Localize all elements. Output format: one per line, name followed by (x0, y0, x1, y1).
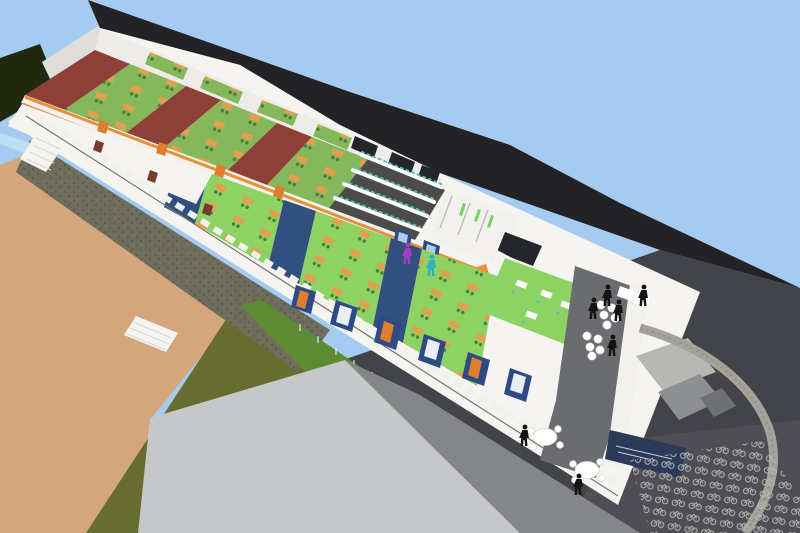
scene-canvas (0, 0, 800, 533)
rendered-3d-model-view (0, 0, 800, 533)
